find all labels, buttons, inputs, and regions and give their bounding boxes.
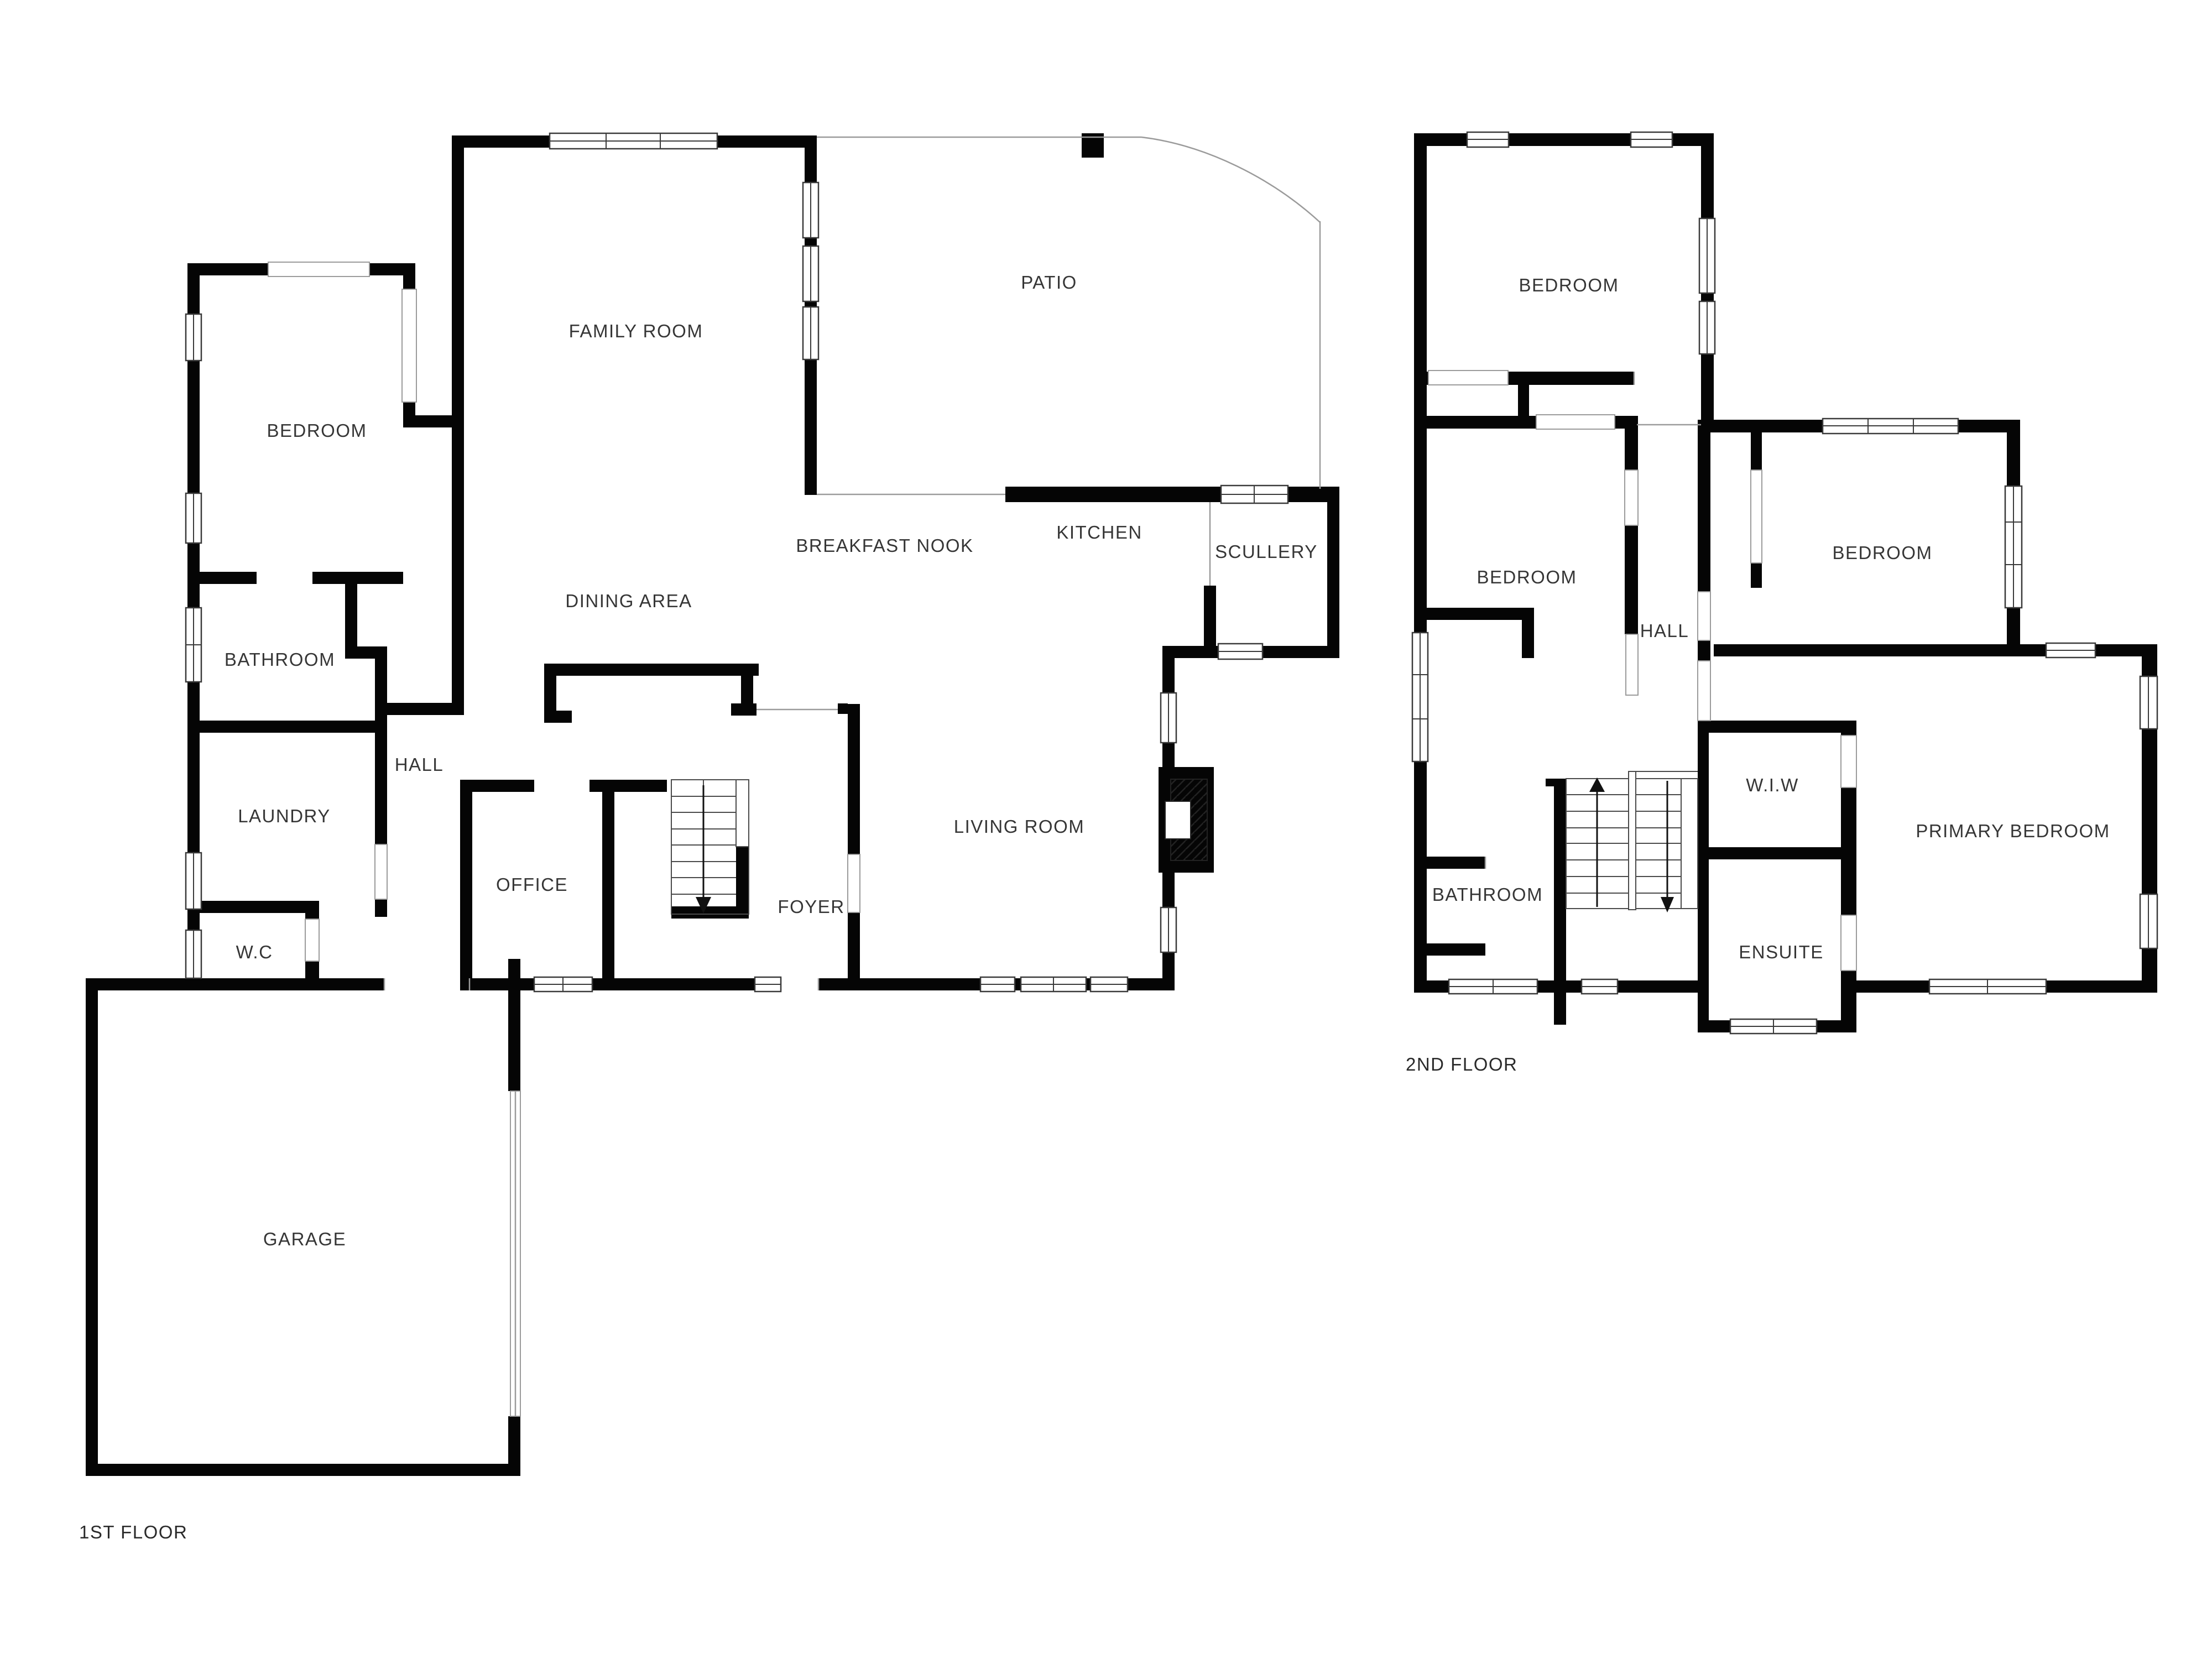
- floor1-walls: [86, 133, 1339, 1476]
- room-label-garage: GARAGE: [263, 1229, 346, 1249]
- window-family-east-2: [803, 246, 818, 301]
- opening-hall-landing: [1626, 634, 1638, 695]
- floor1-plan: FAMILY ROOM PATIO BEDROOM BREAKFAST NOOK…: [79, 133, 1339, 1542]
- room-label-wiw: W.I.W: [1746, 775, 1798, 795]
- room-label-patio: PATIO: [1021, 272, 1077, 293]
- window-family-east-1: [803, 182, 818, 238]
- floor2-title: 2ND FLOOR: [1406, 1054, 1517, 1074]
- garage-door: [510, 1091, 520, 1416]
- room-label-bathroom-f1: BATHROOM: [225, 649, 335, 670]
- room-label-family-room: FAMILY ROOM: [569, 321, 703, 341]
- window-wc-west: [186, 930, 201, 978]
- window-landing-west: [1412, 633, 1428, 761]
- opening-foyer-living: [848, 854, 860, 912]
- room-label-hall-f1: HALL: [395, 754, 444, 775]
- window-office-south: [534, 977, 592, 992]
- room-label-foyer: FOYER: [778, 896, 844, 917]
- room-label-kitchen: KITCHEN: [1056, 522, 1142, 542]
- room-label-ensuite: ENSUITE: [1739, 942, 1824, 962]
- window-bedroom-west-2: [186, 493, 201, 543]
- window-living-south-1: [980, 977, 1015, 992]
- floor2-labels: BEDROOM BEDROOM HALL BEDROOM BATHROOM W.…: [1406, 275, 2110, 1074]
- room-label-hall-f2: HALL: [1640, 620, 1689, 641]
- window-living-south-2: [1021, 977, 1086, 992]
- stairs-landing-strip: [736, 780, 749, 847]
- room-label-bedroom-left: BEDROOM: [1477, 567, 1577, 587]
- opening-rightbed-door: [1698, 592, 1710, 640]
- window-primary-east-2: [2140, 894, 2157, 948]
- room-label-bedroom-right: BEDROOM: [1832, 542, 1932, 563]
- window-entry-sidelite: [755, 977, 781, 992]
- window-topbed-east-1: [1699, 218, 1715, 293]
- room-label-living-room: LIVING ROOM: [954, 816, 1085, 837]
- window-living-east-2: [1161, 907, 1176, 952]
- window-rightbed-north: [1823, 419, 1958, 434]
- window-topbed-north-2: [1631, 132, 1672, 147]
- opening-laundry-door: [375, 844, 387, 899]
- opening-leftbed-closet: [1536, 415, 1615, 429]
- window-ensuite-south: [1730, 1019, 1817, 1034]
- room-label-bedroom-top: BEDROOM: [1519, 275, 1619, 295]
- floorplan-canvas: FAMILY ROOM PATIO BEDROOM BREAKFAST NOOK…: [0, 0, 2212, 1659]
- opening-ensuite-door: [1841, 915, 1856, 971]
- room-label-scullery: SCULLERY: [1215, 541, 1318, 562]
- room-label-primary-bedroom: PRIMARY BEDROOM: [1916, 821, 2110, 841]
- window-rightbed-east: [2005, 486, 2022, 608]
- opening-wc-door: [305, 919, 319, 961]
- room-label-bathroom-f2: BATHROOM: [1432, 884, 1543, 905]
- floorplan-page: FAMILY ROOM PATIO BEDROOM BREAKFAST NOOK…: [0, 0, 2212, 1659]
- window-primary-east-1: [2140, 676, 2157, 729]
- window-bathroom-south: [1449, 979, 1537, 994]
- floor2-stairs: [1566, 771, 1698, 912]
- patio-outline: [817, 137, 1320, 586]
- window-topbed-north-1: [1467, 132, 1509, 147]
- window-living-east-1: [1161, 693, 1176, 743]
- window-scullery-north: [1221, 486, 1288, 503]
- floor2-openings: [1428, 371, 1856, 971]
- stairs-up-arrow-icon: [1589, 778, 1605, 907]
- floor2-plan: BEDROOM BEDROOM HALL BEDROOM BATHROOM W.…: [1406, 132, 2157, 1074]
- stairs-center-rail: [1629, 771, 1636, 910]
- room-label-dining-area: DINING AREA: [565, 591, 692, 611]
- window-primary-north: [2046, 643, 2095, 658]
- opening-primary-door: [1698, 661, 1710, 721]
- room-label-office: OFFICE: [496, 874, 568, 895]
- window-bedroom-west-1: [186, 314, 201, 361]
- floor1-title: 1ST FLOOR: [79, 1522, 187, 1542]
- window-living-south-3: [1091, 977, 1128, 992]
- window-scullery-south: [1218, 644, 1262, 659]
- room-label-laundry: LAUNDRY: [238, 806, 331, 826]
- room-label-breakfast-nook: BREAKFAST NOOK: [796, 535, 973, 556]
- opening-wiw-door: [1841, 735, 1856, 787]
- opening-bedroom-north: [268, 262, 369, 276]
- opening-bedroom-closet: [402, 289, 416, 402]
- window-family-top: [550, 133, 717, 149]
- window-stairlanding-south: [1582, 979, 1618, 994]
- window-topbed-east-2: [1699, 301, 1715, 354]
- room-label-bedroom-f1: BEDROOM: [267, 420, 367, 441]
- room-label-wc: W.C: [236, 942, 273, 962]
- window-laundry-west: [186, 853, 201, 909]
- fireplace-icon: [1159, 767, 1214, 873]
- opening-rightbed-closet: [1751, 470, 1762, 563]
- window-primary-south: [1929, 979, 2046, 994]
- opening-topbed-closet: [1428, 371, 1508, 385]
- window-bathroom-west: [186, 608, 201, 682]
- window-family-east-3: [803, 307, 818, 359]
- opening-leftbed-door: [1625, 470, 1638, 525]
